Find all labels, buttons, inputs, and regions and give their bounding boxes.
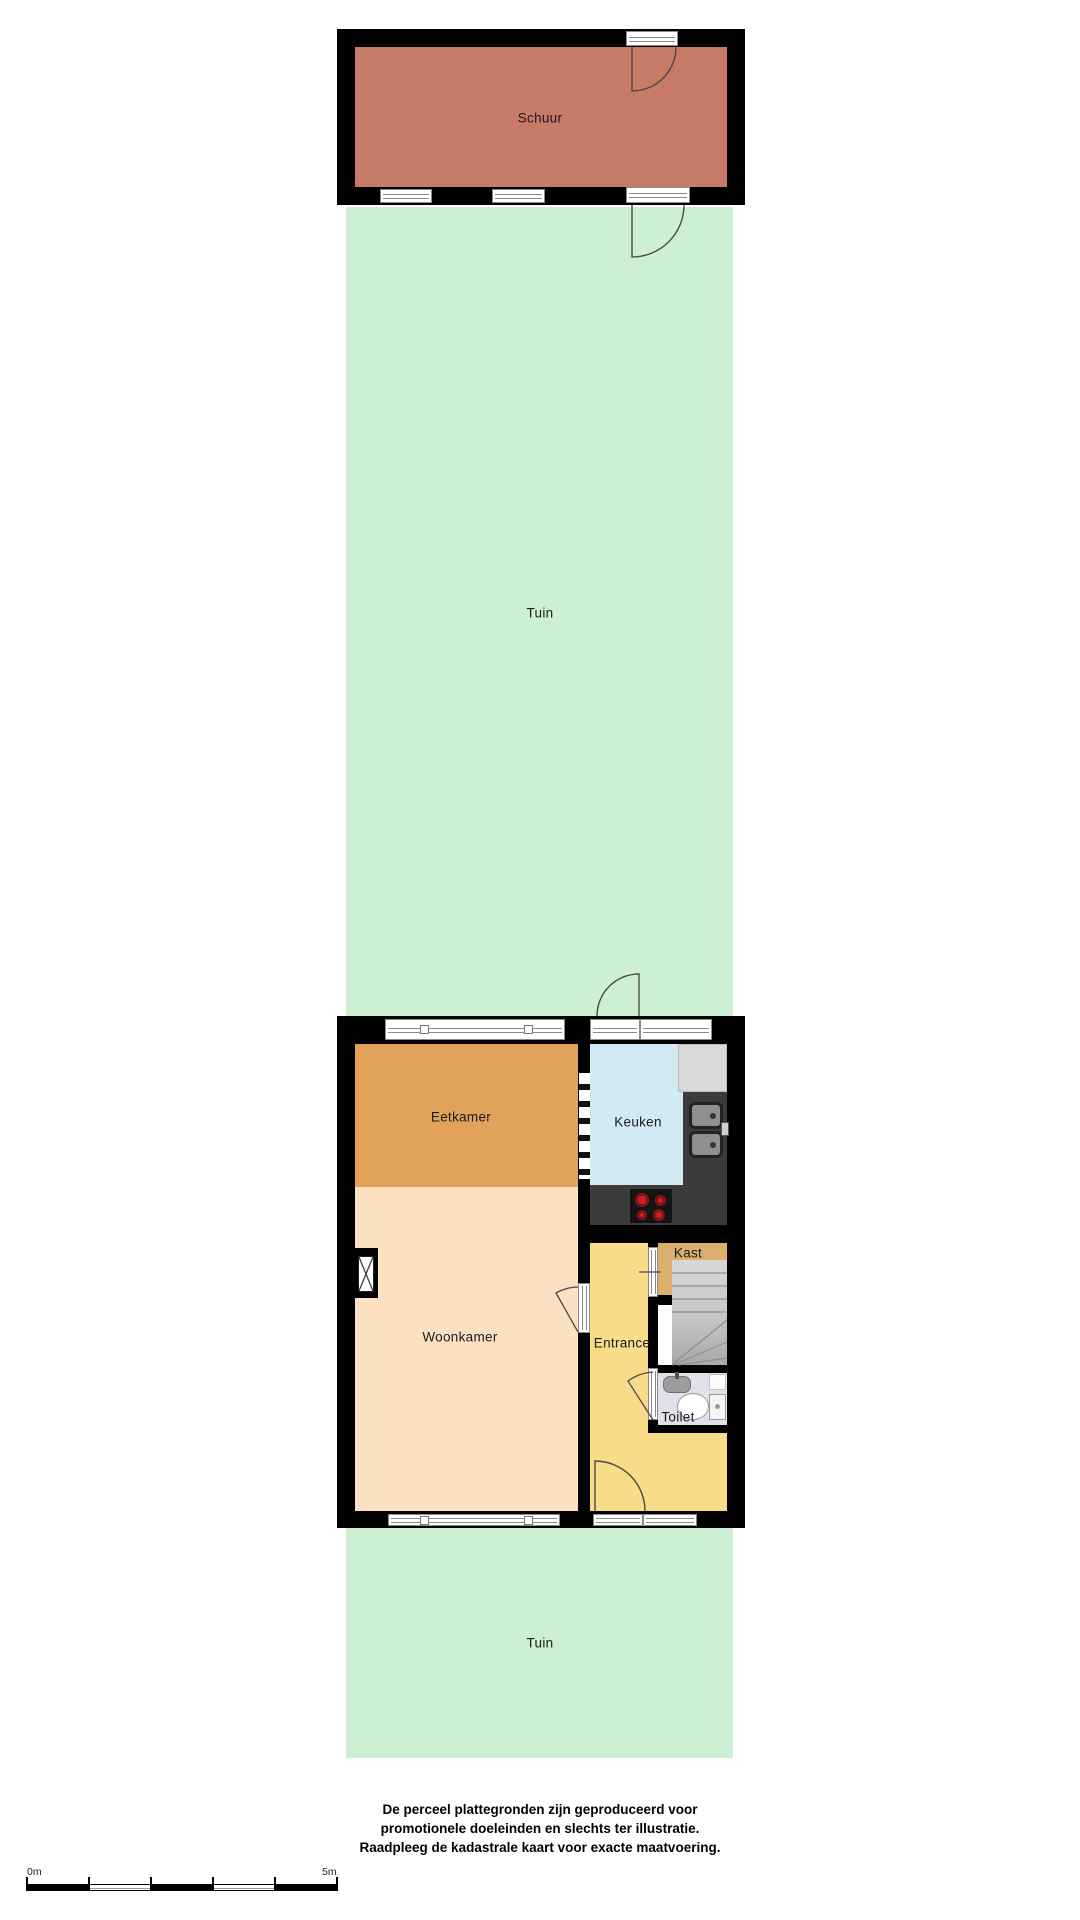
pass-through-opening [579,1073,590,1179]
scale-tick [150,1877,152,1891]
scale-tick [212,1877,214,1891]
sink-basin-bottom-icon [689,1131,723,1158]
burner-icon [655,1195,666,1206]
kast-door-opening [648,1247,658,1297]
woonkamer-door-opening [578,1283,590,1333]
disclaimer-line: promotionele doeleinden en slechts ter i… [0,1819,1080,1838]
front-door-opening [593,1514,643,1526]
scale-segment [89,1884,151,1891]
toilet-label: Toilet [661,1410,694,1425]
faucet-icon [721,1122,729,1136]
disclaimer-text: De perceel plattegronden zijn geproducee… [0,1800,1080,1857]
hall-floor [658,1305,672,1365]
tuin-top-label: Tuin [527,606,554,621]
floor-plan-canvas: Schuur Tuin Eetkamer Keuken Woonkamer En… [0,0,1080,1920]
eetkamer-label: Eetkamer [431,1110,491,1125]
disclaimer-line: Raadpleeg de kadastrale kaart voor exact… [0,1838,1080,1857]
cooktop-icon [630,1189,672,1223]
scale-tick [274,1877,276,1891]
woonkamer-floor [355,1187,578,1511]
scale-tick [336,1877,338,1891]
sink-basin-top-icon [689,1102,723,1129]
scale-tick [26,1877,28,1891]
scale-end-label: 5m [322,1866,337,1878]
toilet-shelf-icon [709,1374,726,1390]
scale-segment [27,1884,89,1891]
schuur-window-left [380,189,432,203]
schuur-top-door-opening [626,31,678,46]
facade-bottom-window [388,1514,560,1526]
keuken-label: Keuken [614,1115,662,1130]
washbasin-icon [663,1376,691,1393]
staircase [672,1260,727,1365]
toilet-bottom-wall [648,1425,727,1433]
window-mullion [524,1516,533,1525]
entrance-label: Entrance [594,1336,650,1351]
burner-icon [635,1193,649,1207]
disclaimer-line: De perceel plattegronden zijn geproducee… [0,1800,1080,1819]
scale-start-label: 0m [27,1866,42,1878]
kast-label: Kast [674,1246,702,1261]
garden-door-opening [590,1019,640,1040]
tuin-bottom-label: Tuin [527,1636,554,1651]
facade-top-window-right [640,1019,712,1040]
burner-icon [637,1210,647,1220]
toilet-cistern-icon [709,1394,726,1420]
toilet-door-opening [648,1368,658,1420]
scale-segment [275,1884,337,1891]
kitchen-counter-block [678,1044,727,1092]
schuur-window-right [492,189,545,203]
schuur-bottom-door-opening [626,187,690,203]
window-mullion [420,1025,429,1034]
window-mullion [420,1516,429,1525]
scale-segment [213,1884,275,1891]
woonkamer-label: Woonkamer [422,1330,497,1345]
front-sidelight-window [643,1514,697,1526]
schuur-label: Schuur [518,111,563,126]
scale-segment [151,1884,213,1891]
toilet-top-wall [648,1365,727,1373]
chimney-flue-icon [358,1256,374,1292]
facade-top-window-left [385,1019,565,1040]
burner-icon [653,1209,665,1221]
window-mullion [524,1025,533,1034]
scale-tick [88,1877,90,1891]
